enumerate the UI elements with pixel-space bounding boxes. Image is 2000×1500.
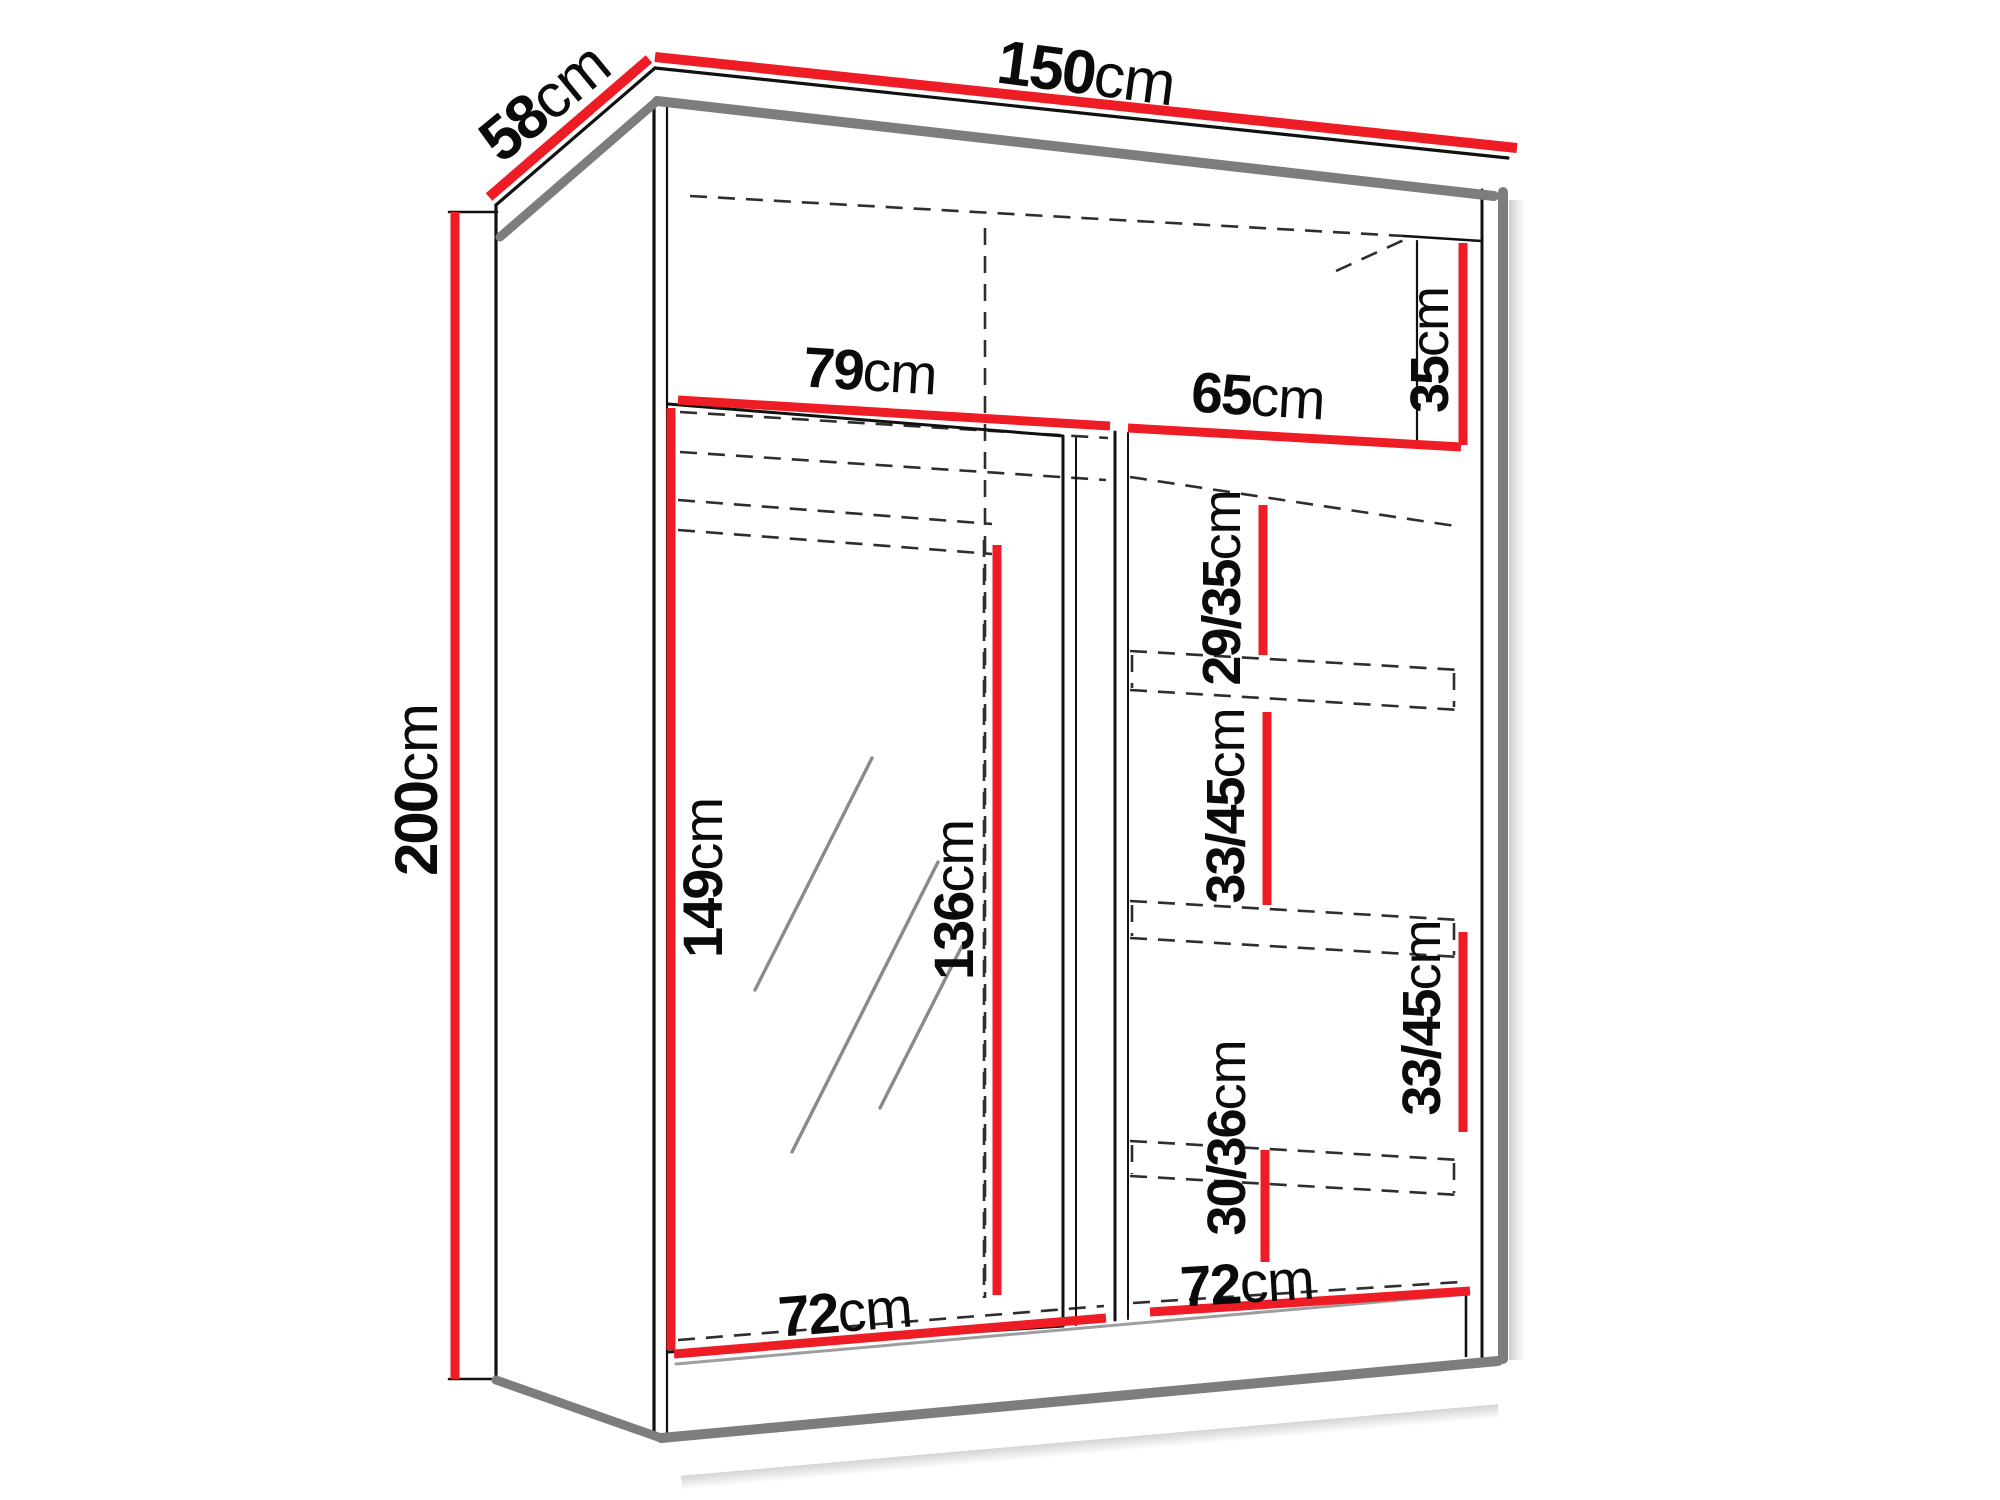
shelf4-height-unit: cm [1392, 920, 1452, 990]
top-shelf-height-label: 35cm [1403, 287, 1457, 413]
right-top-width-value: 65 [1190, 360, 1253, 428]
left-bottom-width-unit: cm [835, 1275, 914, 1345]
hanging-height-label: 136cm [926, 820, 982, 980]
wardrobe-dimension-diagram: 58cm 150cm 200cm 79cm 65cm 35cm 29/35cm … [0, 0, 2000, 1500]
right-bottom-width-unit: cm [1238, 1247, 1316, 1315]
shelf3-height-unit: cm [1196, 708, 1256, 778]
shelf4-height-label: 33/45cm [1395, 920, 1449, 1115]
shelf4-height-value: 33/45 [1392, 990, 1452, 1115]
hanging-height-value: 136 [922, 893, 985, 980]
left-bottom-width-value: 72 [776, 1281, 840, 1349]
shelf3-height-label: 33/45cm [1199, 708, 1253, 903]
height-value: 200 [383, 782, 450, 876]
carcass-outline [449, 68, 1508, 1436]
shelf3-height-value: 33/45 [1196, 778, 1256, 903]
mirror-height-label: 149cm [675, 798, 731, 958]
left-top-width-unit: cm [861, 339, 939, 407]
wardrobe-drawing [0, 0, 2000, 1500]
right-section-width-label: 65cm [1190, 364, 1327, 429]
shelf2-height-unit: cm [1192, 490, 1252, 560]
top-shelf-height-value: 35 [1400, 357, 1460, 413]
mirror-height-unit: cm [671, 798, 734, 871]
right-bottom-width-label: 72cm [1179, 1251, 1316, 1316]
shelf2-height-value: 29/35 [1192, 560, 1252, 685]
bottom-shelf-height-value: 30/36 [1197, 1110, 1257, 1235]
right-shadow [1509, 200, 1525, 1360]
bottom-shelf-height-unit: cm [1197, 1040, 1257, 1110]
right-top-width-unit: cm [1249, 364, 1327, 432]
left-section-width-label: 79cm [802, 339, 939, 404]
width-value: 150 [993, 28, 1099, 109]
height-unit: cm [383, 704, 450, 782]
bottom-shadow [681, 1404, 1499, 1489]
width-unit: cm [1090, 40, 1179, 119]
bottom-shelf-height-label: 30/36cm [1200, 1040, 1254, 1235]
hanging-height-unit: cm [922, 820, 985, 893]
left-bottom-width-label: 72cm [776, 1279, 913, 1346]
height-dimension-label: 200cm [387, 704, 447, 876]
shelf2-height-label: 29/35cm [1195, 490, 1249, 685]
top-shelf-height-unit: cm [1400, 287, 1460, 357]
right-bottom-width-value: 72 [1178, 1252, 1241, 1320]
left-top-width-value: 79 [802, 335, 865, 403]
mirror-height-value: 149 [671, 871, 734, 958]
hidden-interior-lines [678, 196, 1462, 1340]
